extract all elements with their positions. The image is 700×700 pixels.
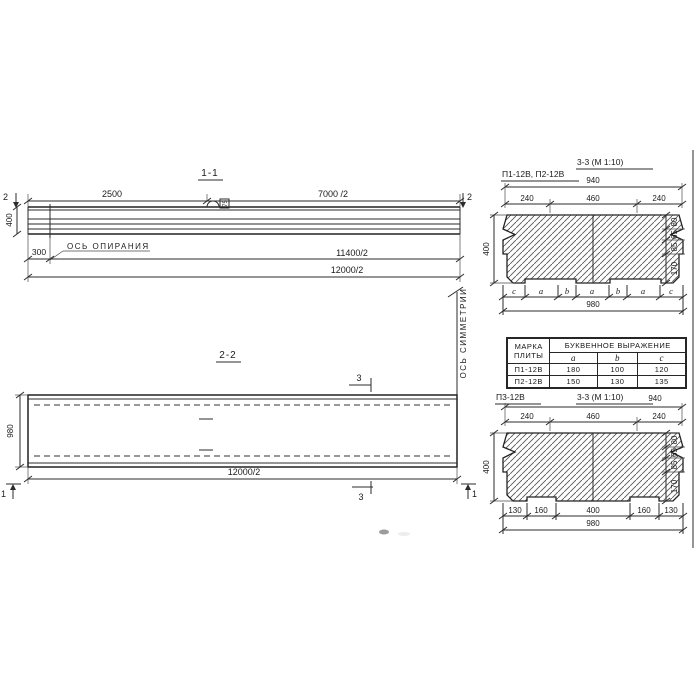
dim-170b: 170 <box>670 479 679 493</box>
section-2-2-view: 2-2 3 980 12000/2 1 1 <box>1 350 477 502</box>
dim-height-400: 400 <box>5 213 14 227</box>
table-col-a: a <box>550 352 597 364</box>
dim-400b: 400 <box>482 460 491 474</box>
table-header-expression: БУКВЕННОЕ ВЫРАЖЕНИЕ <box>550 338 686 352</box>
dim-240b-l: 240 <box>520 412 534 421</box>
loop-label: 75 <box>223 200 229 207</box>
dim-7000-2: 7000 /2 <box>318 189 348 199</box>
dim-940a: 940 <box>586 176 600 185</box>
dim-65a: 65 <box>670 230 679 239</box>
dim-65b: 65 <box>670 448 679 457</box>
letter-a3: a <box>641 286 645 296</box>
dim-400-mid: 400 <box>586 506 600 515</box>
section-3-3-p1-p2: П1-12В, П2-12В 3-3 (М 1:10) 940 240 460 … <box>482 157 687 315</box>
dim-460b: 460 <box>586 412 600 421</box>
dim-85a: 85 <box>670 242 679 251</box>
cut-mark-2-left: 2 <box>3 192 8 202</box>
dim-160-l: 160 <box>534 506 548 515</box>
dim-240a-l: 240 <box>520 194 534 203</box>
cut-mark-3-bottom: 3 <box>358 492 363 502</box>
p3-label: П3-12В <box>496 392 525 402</box>
row1-mark: П1-12В <box>507 364 550 376</box>
letter-a1: a <box>539 286 543 296</box>
cut-mark-3-top: 3 <box>356 373 361 383</box>
p1-p2-label: П1-12В, П2-12В <box>502 169 565 179</box>
row2-a: 150 <box>550 376 597 388</box>
dim-80b: 80 <box>670 435 679 444</box>
row2-c: 135 <box>638 376 686 388</box>
dim-130-l: 130 <box>508 506 522 515</box>
dim-12000-2: 12000/2 <box>331 265 364 275</box>
section-1-1-view: 1-1 2500 7000 /2 2 2 75 <box>3 168 472 282</box>
symmetry-axis-label: ОСЬ СИММЕТРИИ <box>459 288 468 379</box>
letter-a2: a <box>590 286 594 296</box>
section-2-2-title: 2-2 <box>219 350 236 361</box>
section-3-3a-title: 3-3 (М 1:10) <box>577 157 623 167</box>
letter-c1: c <box>512 286 516 296</box>
dim-240b-r: 240 <box>652 412 666 421</box>
dim-130-r: 130 <box>664 506 678 515</box>
dim-85b: 85 <box>670 460 679 469</box>
letter-c2: c <box>669 286 673 296</box>
dim-300: 300 <box>32 247 46 257</box>
dim-980a: 980 <box>586 300 600 309</box>
table-col-c: c <box>638 352 686 364</box>
row2-b: 130 <box>597 376 638 388</box>
row1-a: 180 <box>550 364 597 376</box>
dim-400a: 400 <box>482 242 491 256</box>
dim-2500: 2500 <box>102 189 122 199</box>
dim-170a: 170 <box>670 261 679 275</box>
letter-b1: b <box>565 286 569 296</box>
dim-12000-2-plan: 12000/2 <box>228 467 261 477</box>
dim-940b: 940 <box>648 394 662 403</box>
section-3-3-p3: П3-12В 3-3 (М 1:10) 940 240 460 240 400 <box>482 392 687 534</box>
dim-980-height: 980 <box>6 424 15 438</box>
dim-160-r: 160 <box>637 506 651 515</box>
section-1-1-title: 1-1 <box>201 168 218 179</box>
row1-b: 100 <box>597 364 638 376</box>
cut-mark-1-left: 1 <box>1 489 6 499</box>
scan-smudge <box>379 530 389 535</box>
letter-b2: b <box>616 286 620 296</box>
support-axis-label: ОСЬ ОПИРАНИЯ <box>67 242 150 251</box>
section-3-3b-title: 3-3 (М 1:10) <box>577 392 623 402</box>
dim-460a: 460 <box>586 194 600 203</box>
plate-spec-table: МАРКА ПЛИТЫ БУКВЕННОЕ ВЫРАЖЕНИЕ a b c П1… <box>506 337 687 389</box>
dim-980b: 980 <box>586 519 600 528</box>
scan-smudge-2 <box>398 532 410 536</box>
row1-c: 120 <box>638 364 686 376</box>
cut-mark-1-right: 1 <box>472 489 477 499</box>
table-header-mark: МАРКА ПЛИТЫ <box>507 338 550 364</box>
symmetry-axis: ОСЬ СИММЕТРИИ <box>448 287 468 395</box>
row2-mark: П2-12В <box>507 376 550 388</box>
dim-240a-r: 240 <box>652 194 666 203</box>
table-row: П1-12В 180 100 120 <box>507 364 686 376</box>
table-col-b: b <box>597 352 638 364</box>
cut-mark-2-right: 2 <box>467 192 472 202</box>
dim-11400-2: 11400/2 <box>336 248 368 258</box>
table-row: П2-12В 150 130 135 <box>507 376 686 388</box>
dim-80a: 80 <box>670 217 679 226</box>
drawing-sheet: 1-1 2500 7000 /2 2 2 75 <box>0 0 700 700</box>
